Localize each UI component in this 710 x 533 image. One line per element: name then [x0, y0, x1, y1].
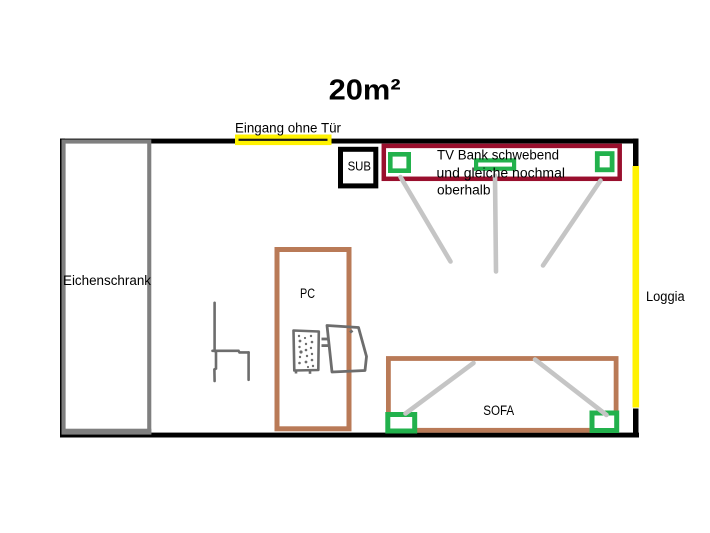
svg-text:Eichenschrank: Eichenschrank — [63, 273, 151, 288]
svg-text:Loggia: Loggia — [646, 289, 685, 304]
svg-text:oberhalb: oberhalb — [437, 183, 491, 198]
svg-text:SUB: SUB — [348, 159, 371, 174]
svg-text:20m²: 20m² — [329, 74, 401, 106]
svg-text:TV Bank schwebend: TV Bank schwebend — [437, 148, 559, 163]
svg-text:Eingang ohne Tür: Eingang ohne Tür — [235, 121, 341, 136]
svg-text:SOFA: SOFA — [483, 403, 514, 418]
svg-text:und gleiche nochmal: und gleiche nochmal — [437, 166, 566, 181]
svg-text:PC: PC — [300, 286, 315, 301]
